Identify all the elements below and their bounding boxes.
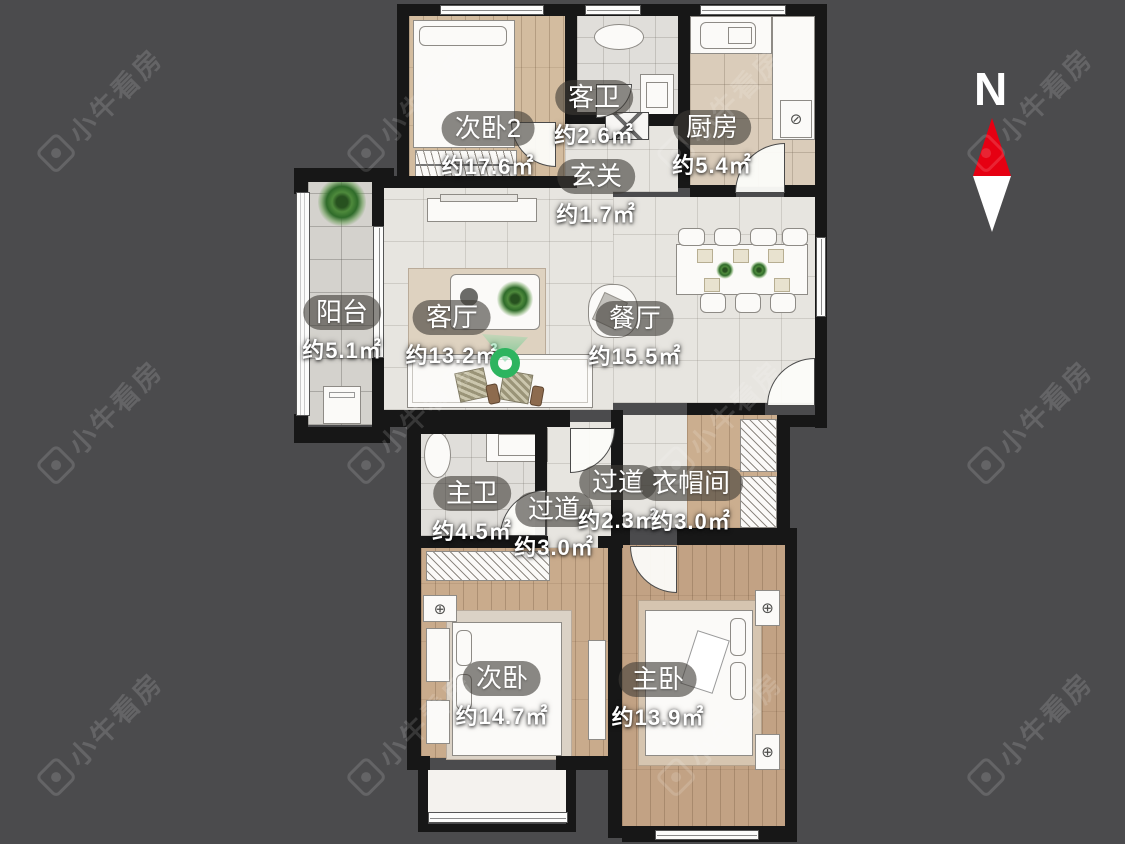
tv-icon [440,194,518,202]
floor-hallway-upper [613,415,687,528]
pillow [730,662,746,700]
wall-master-top-r [677,528,790,545]
pillow [456,674,472,710]
niu-camera-logo-icon [35,132,77,174]
window-bedroom2 [440,5,544,15]
watermark: 小牛看房 [31,350,170,489]
pillow [419,26,507,46]
watermark-text: 小牛看房 [58,350,170,462]
compass-needle-south-icon [973,176,1011,232]
wall-master-right [785,528,797,840]
washing-machine-panel [329,392,355,398]
nightstand: ⊕ [755,734,780,770]
kitchen-appliance: ⊘ [780,100,812,138]
niu-camera-logo-icon [345,756,387,798]
window-master-bedroom [655,830,759,840]
dining-table-plant [716,261,734,279]
cloakroom-wardrobe [740,476,777,528]
wall-kitchen-bottom-left [690,185,736,197]
niu-camera-logo-icon [345,444,387,486]
hvac-unit: ⊕ [423,595,457,622]
place-setting [768,249,784,263]
place-setting [697,249,713,263]
wall-master-top-l [611,528,630,545]
floorplan-canvas: ⊘ ⊕ ⊕ ⊕ 次卧2 [0,0,1125,844]
wall-cloakroom-top [687,403,765,415]
nightstand [426,628,450,682]
watermark-text: 小牛看房 [988,350,1100,462]
wall-cloakroom-right [777,415,790,540]
coffee-table-bowl [460,288,478,306]
window-balcony-living [373,226,384,358]
dining-chair [770,293,796,313]
wall-left-lower-outer [407,422,421,770]
window-bay [428,812,568,823]
nightstand [426,700,450,744]
pillow [730,618,746,656]
wall-balcony-top [294,168,394,182]
window-guest-bath [585,5,641,15]
wall-bay-left [418,758,428,830]
dining-chair [782,228,808,246]
kitchen-sink-basin [728,27,752,44]
cloakroom-wardrobe [740,419,777,472]
place-setting [733,249,749,263]
bay-window-floor [428,770,568,816]
coffee-table-plant [497,280,533,318]
dining-chair [678,228,705,246]
clothes-rack [426,551,550,581]
wall-shaft-side [648,114,678,126]
niu-camera-logo-icon [35,444,77,486]
balcony-plant [318,176,366,228]
nightstand: ⊕ [755,590,780,626]
compass-needle-north-icon [973,118,1011,176]
niu-camera-logo-icon [965,444,1007,486]
wall-bedroom2-bath-divider [565,16,577,122]
wall-balcony-bottom [294,427,390,443]
toilet-guest-bath [594,24,644,50]
niu-camera-logo-icon [35,756,77,798]
dining-chair [700,293,726,313]
wall-balcony-corner-tl [294,168,308,194]
compass-north-label: N [974,62,1007,116]
wall-bedroom2-left [397,4,409,180]
sink-basin [498,434,536,456]
wall-right-step [777,415,827,427]
wall-master-bath-top [407,422,547,434]
wall-bay-bottom [418,824,576,832]
niu-camera-logo-icon [965,756,1007,798]
watermark: 小牛看房 [961,662,1100,801]
dining-chair [714,228,741,246]
wall-kitchen-bottom-right [784,185,827,197]
sink-basin [646,82,668,108]
wall-bedrooms-divider [608,548,622,838]
wall-master-bath-divider [535,434,547,492]
window-kitchen [700,5,786,15]
toilet-master-bath [424,432,451,478]
dining-chair [735,293,761,313]
location-pin-icon[interactable] [490,348,520,378]
pillow [456,630,472,666]
window-dining [816,237,826,317]
watermark: 小牛看房 [961,350,1100,489]
watermark: 小牛看房 [31,38,170,177]
wall-second-bedroom-top-l [407,536,548,548]
sofa-cushion [454,367,490,403]
window-balcony [296,192,310,416]
watermark-text: 小牛看房 [58,662,170,774]
wall-living-top [381,176,577,188]
wall-right-outer [815,4,827,428]
dining-table-plant [750,261,768,279]
wall-bath-kitchen-divider [678,16,690,188]
watermark-text: 小牛看房 [988,662,1100,774]
place-setting [704,278,720,292]
watermark: 小牛看房 [31,662,170,801]
wardrobe-strip [588,640,606,740]
watermark-text: 小牛看房 [58,38,170,150]
dining-chair [750,228,777,246]
wall-balcony-living-top [372,182,384,226]
place-setting [774,278,790,292]
shaft-box [605,112,649,140]
